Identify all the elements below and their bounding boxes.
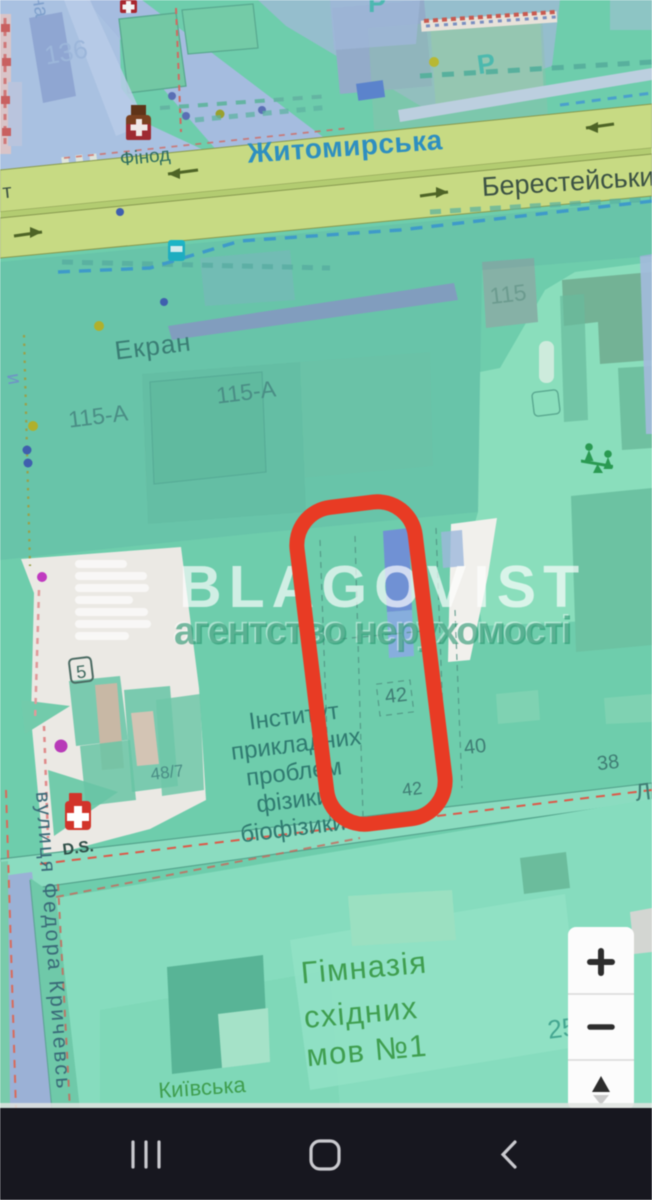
- svg-text:48/7: 48/7: [150, 761, 185, 784]
- svg-text:115: 115: [488, 279, 528, 309]
- svg-text:42: 42: [384, 684, 409, 709]
- svg-text:40: 40: [463, 735, 488, 760]
- svg-text:P: P: [368, 0, 386, 18]
- svg-text:42: 42: [401, 778, 423, 800]
- svg-text:Л: Л: [634, 778, 652, 807]
- svg-text:38: 38: [596, 751, 621, 776]
- svg-text:агентство нерухомості: агентство нерухомості: [174, 610, 571, 653]
